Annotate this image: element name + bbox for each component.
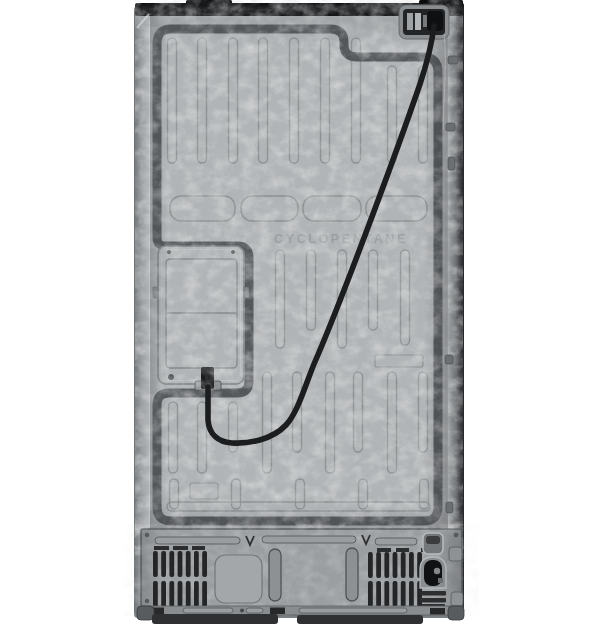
refrigerator-back-photo: CYCLOPENTANE	[0, 0, 600, 625]
foot-left	[152, 614, 278, 624]
compressor-compartment	[141, 529, 462, 611]
louver-slot-right	[346, 548, 358, 601]
base-and-feet	[137, 606, 464, 624]
terminal-clip	[415, 13, 421, 30]
compressor-cover-plate	[215, 555, 262, 603]
terminal-clip	[423, 15, 427, 27]
left-side-wall	[134, 12, 151, 612]
leveling-leg-right	[448, 606, 464, 620]
louver-slot-left	[269, 549, 281, 601]
terminal-clip	[407, 13, 413, 30]
refrigerator-illustration: CYCLOPENTANE	[0, 0, 600, 625]
foot-right	[297, 615, 423, 624]
right-side-wall	[446, 12, 464, 612]
leveling-leg-left	[137, 606, 154, 620]
back-panel: CYCLOPENTANE	[137, 14, 448, 530]
